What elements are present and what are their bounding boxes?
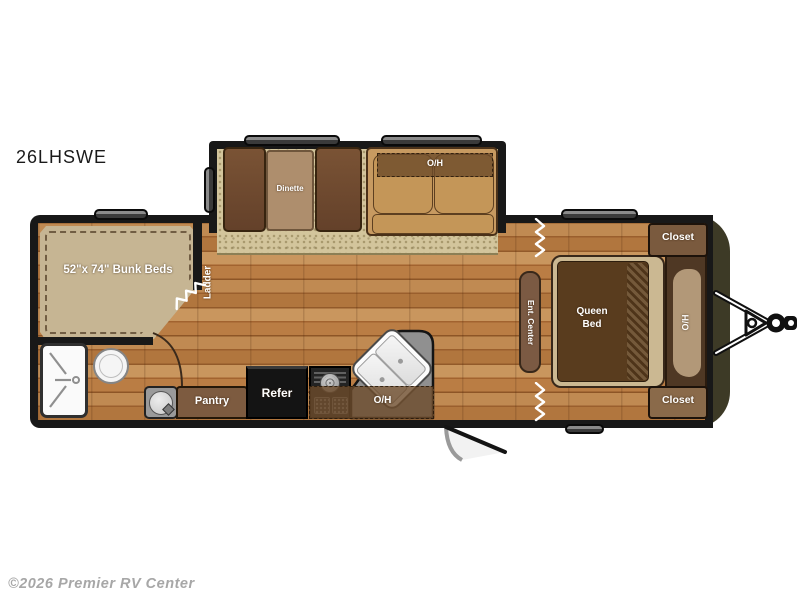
sofa-seat bbox=[372, 214, 494, 234]
dinette-label: Dinette bbox=[260, 184, 320, 193]
entry-door-swing bbox=[438, 421, 518, 471]
window-slideout-right bbox=[381, 135, 482, 146]
shower bbox=[40, 343, 88, 418]
window-bedroom bbox=[561, 209, 638, 220]
refrigerator-label: Refer bbox=[248, 386, 306, 400]
zigzag-top-wall bbox=[535, 218, 547, 258]
toilet bbox=[144, 386, 178, 419]
bunk-bed-mattress-outline bbox=[45, 231, 191, 334]
closet-bottom-label: Closet bbox=[648, 394, 708, 406]
window-bottom-wall bbox=[565, 424, 604, 434]
queen-bed-pillows bbox=[627, 263, 648, 380]
bunk-label: 52"x 74" Bunk Beds bbox=[46, 264, 190, 276]
entertainment-center-label: Ent. Center bbox=[524, 275, 537, 370]
dinette-bench-right bbox=[315, 147, 362, 232]
watermark: ©2026 Premier RV Center bbox=[8, 576, 195, 592]
floor-plan-image: 26LHSWE Dinette O/H 52"x 74" Bunk Beds L… bbox=[0, 0, 800, 600]
kitchen-overhead-label: O/H bbox=[355, 395, 410, 406]
queen-bed-label: Queen Bed bbox=[560, 305, 624, 331]
window-slideout-left bbox=[244, 135, 340, 146]
pantry-label: Pantry bbox=[178, 395, 246, 407]
zigzag-bottom-wall bbox=[535, 382, 547, 422]
bathroom-sink-basin bbox=[99, 354, 123, 378]
sofa-overhead-label: O/H bbox=[407, 158, 463, 168]
closet-top-label: Closet bbox=[648, 231, 708, 243]
hitch bbox=[706, 283, 800, 368]
bedroom-overhead-label: O/H bbox=[680, 298, 693, 348]
bathroom-sink bbox=[93, 348, 129, 384]
window-bunk-room bbox=[94, 209, 148, 220]
window-slideout-side bbox=[204, 167, 215, 213]
plan-title: 26LHSWE bbox=[16, 147, 107, 168]
